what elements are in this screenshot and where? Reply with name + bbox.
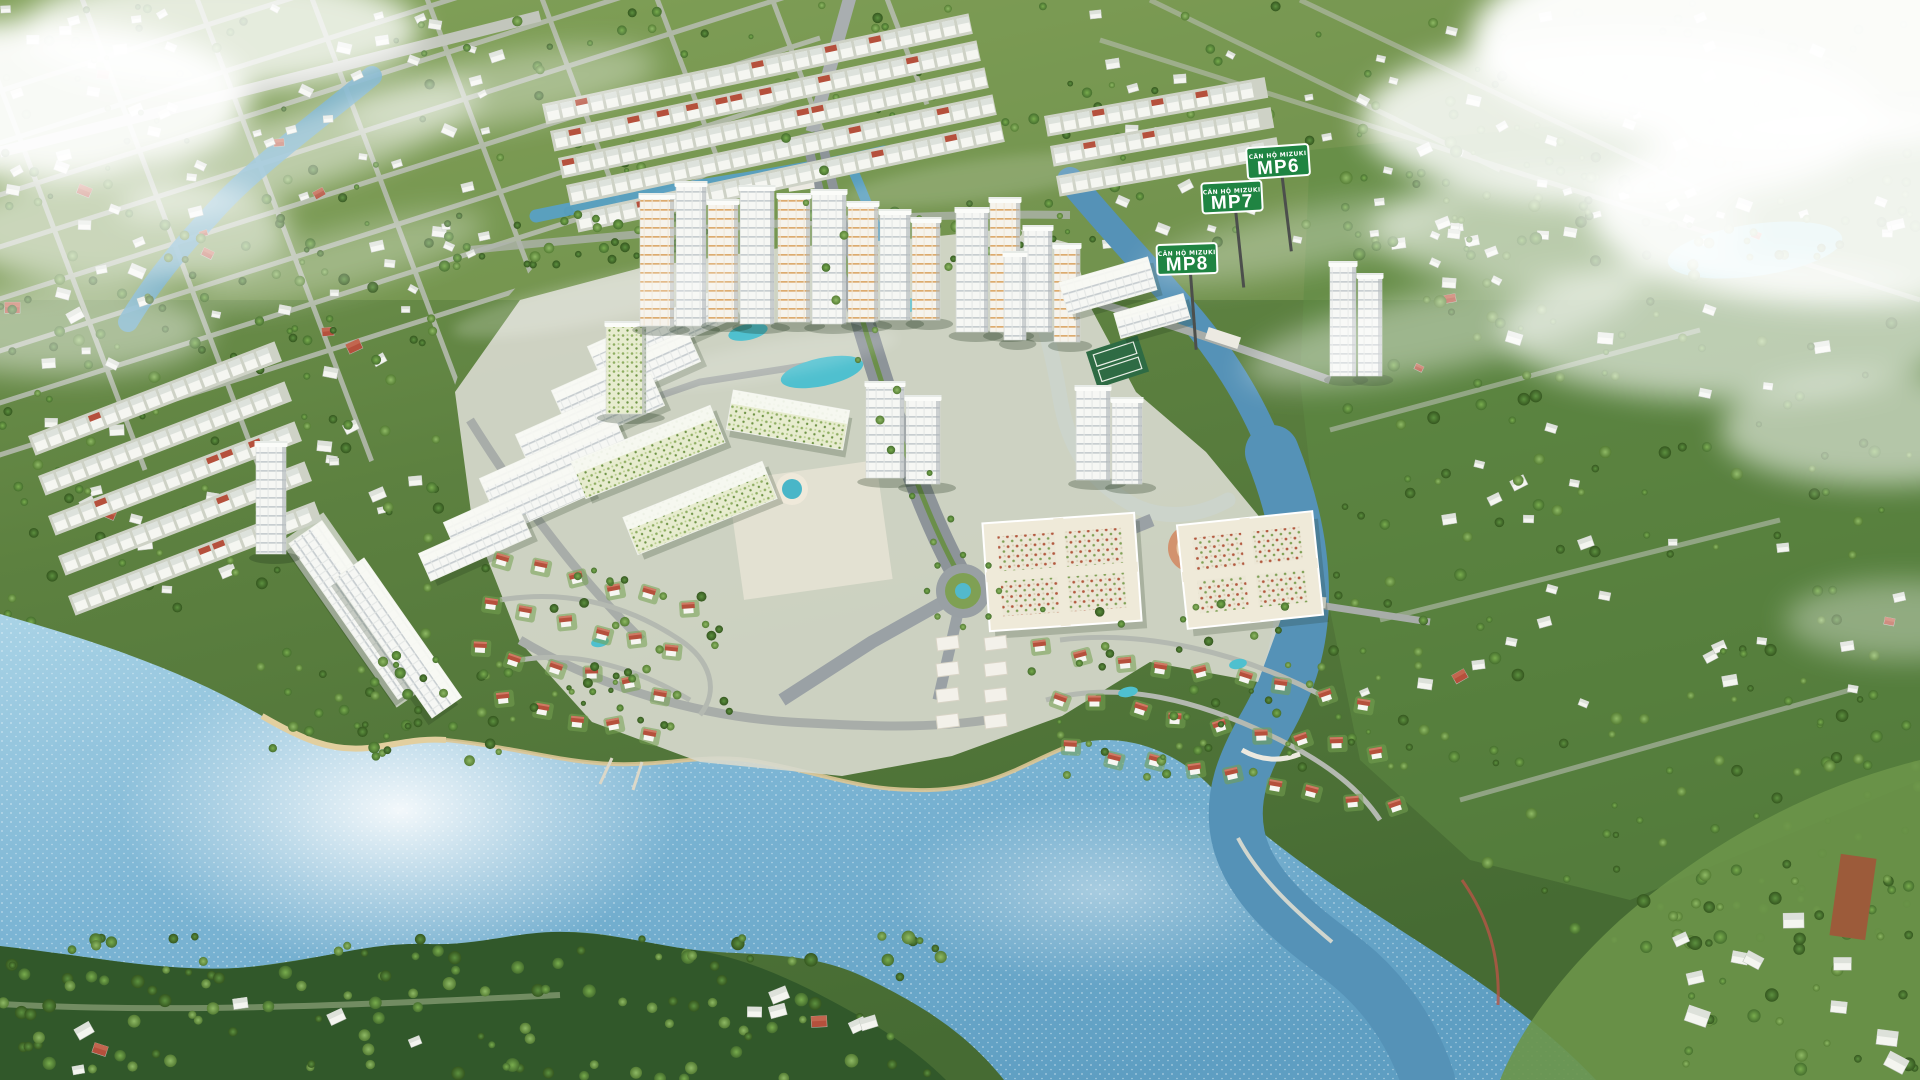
tree [419,674,427,682]
tree [64,493,74,503]
tree [201,979,210,988]
tree [226,557,234,565]
tree [680,50,688,58]
tree [717,975,728,986]
tree [1699,869,1711,881]
tree [1534,454,1545,465]
tree [1853,753,1864,764]
tree [19,968,31,980]
house [317,440,332,452]
tree [1204,637,1213,646]
tree [408,989,418,999]
tree [367,282,378,293]
tree [1334,591,1342,599]
tree [1118,620,1125,627]
tree [612,622,620,630]
tree [1449,751,1460,762]
house [401,306,410,312]
tree [1563,875,1571,883]
tree [638,935,645,942]
tree [20,498,28,506]
tree [1814,910,1824,920]
tree [479,669,489,679]
tree [1719,978,1726,985]
villa [567,713,589,732]
tree [1065,229,1070,234]
tree [334,947,343,956]
tree [1082,88,1092,98]
tree [1427,411,1440,424]
tree [809,997,822,1010]
tree [960,624,966,630]
tree [496,154,504,162]
tree [1515,757,1525,767]
tree [552,260,560,268]
tree [1454,569,1467,582]
tree [788,957,797,966]
tree [590,1060,599,1069]
tree [1098,663,1106,671]
tree [1658,838,1667,847]
tree [282,648,292,658]
tree [1640,941,1652,953]
tree [432,945,443,956]
house [1830,1000,1847,1013]
tree [799,1016,807,1024]
villa [661,642,683,661]
tree [86,971,98,983]
tree [581,701,586,706]
tree [934,562,940,568]
tree [354,184,359,189]
tree [1385,576,1396,587]
tree [1351,599,1360,608]
tree [524,261,531,268]
tree [114,1050,125,1061]
tree [1162,769,1171,778]
tree [13,482,23,492]
tree [1412,180,1420,188]
tree [1473,379,1482,388]
tree [1250,632,1258,640]
tree [1287,750,1293,756]
tree [930,539,937,546]
tree [1204,744,1212,752]
tree [552,691,558,697]
tree [1794,1063,1807,1076]
pavilion [984,713,1007,729]
tree [1795,1049,1808,1062]
tree [511,961,524,974]
sign-label: MP8 [1166,253,1209,275]
tree [1067,81,1073,87]
tree [1608,731,1615,738]
villa [1150,660,1172,680]
house [329,458,339,465]
tree [413,1002,423,1012]
tree [1388,763,1394,769]
tree [630,1067,642,1079]
tree [503,1063,511,1071]
tree [47,570,58,581]
tree [544,243,555,254]
tree [1903,881,1914,892]
tree [1642,489,1648,495]
tree [1613,866,1620,873]
villa [1366,744,1389,764]
tree [1089,236,1096,243]
tree [1522,371,1531,380]
tree [1578,488,1585,495]
tree [448,722,458,732]
tree [1169,711,1178,720]
tree [423,583,432,592]
tree [1530,390,1543,403]
tree [1396,419,1406,429]
sign-label: MP7 [1210,191,1254,214]
tree [1569,923,1580,934]
tree [343,942,351,950]
pavilion [936,687,959,703]
tree [510,716,516,722]
tree [720,697,729,706]
tree [315,1015,322,1022]
tree [1101,748,1109,756]
tree [583,678,593,688]
tree [947,516,954,523]
tree [496,661,503,668]
house [1668,539,1677,546]
tree [1086,741,1092,747]
tree [463,44,471,52]
tree [1357,512,1365,520]
tree [1904,931,1913,940]
tree [1854,1055,1862,1063]
villa [481,595,503,615]
tree [33,1032,45,1044]
tree [427,314,435,322]
house [1776,543,1789,553]
tree [1533,499,1545,511]
tree [1714,930,1728,944]
tree [152,1050,161,1059]
tree [1476,399,1487,410]
tree [871,24,880,33]
tree [301,414,307,420]
tree [281,106,286,111]
tree [1476,623,1484,631]
tree [1057,213,1063,219]
tree [587,40,593,46]
tree [710,961,720,971]
tree [804,953,818,967]
pavilion [984,635,1007,651]
tree [384,746,392,754]
tree [1414,662,1422,670]
tree [1183,713,1190,720]
tree [633,253,639,259]
tree [496,749,502,755]
tree [291,325,298,332]
tree [932,945,940,953]
tree [1400,762,1408,770]
tree [923,1069,931,1077]
tree [303,335,313,345]
tree [1794,933,1806,945]
tree [1189,685,1199,695]
tree [1106,649,1115,658]
tree [1659,446,1671,458]
tree [164,1055,177,1068]
tree [591,568,597,574]
scene-svg: CĂN HỘ MIZUKI MP8 CĂN HỘ MIZUKI MP7 CĂN … [0,0,1920,1080]
tree [1822,488,1830,496]
tree [1688,992,1695,999]
tree [1702,442,1712,452]
tree [1342,503,1349,510]
tree [256,577,268,589]
tree [628,8,637,17]
tree [1493,760,1500,767]
tree [803,200,809,206]
tree [1678,443,1687,452]
tree [652,7,662,17]
tree [1375,675,1381,681]
tree [24,1042,34,1052]
villa [1185,760,1207,780]
tree [1486,616,1492,622]
tree [1428,18,1438,28]
tree [1747,1009,1760,1022]
tree [148,371,160,383]
tree [1836,709,1849,722]
tree [1406,171,1413,178]
tree [1509,417,1517,425]
tree [426,482,437,493]
tree [902,931,916,945]
tree [512,16,522,26]
tree [1265,696,1273,704]
tree [412,952,420,960]
tree [599,243,609,253]
tree [927,470,933,476]
tree [960,552,966,558]
tree [1366,729,1371,734]
tree [1848,551,1857,560]
tree [569,689,575,695]
tree [1682,1060,1689,1067]
tree [697,592,707,602]
house [1417,678,1433,690]
villa [626,630,648,649]
tree [1592,465,1600,473]
house [428,19,442,30]
tree [279,966,292,979]
tree [29,528,39,538]
tree [1687,692,1695,700]
house [72,1065,85,1075]
tree [303,373,310,380]
tree [781,133,791,143]
tree [371,691,380,700]
tree [1360,648,1367,655]
tree [1740,650,1748,658]
tree [232,569,240,577]
tree [34,390,41,397]
tree [1589,546,1600,557]
tree [1714,755,1725,766]
tree [1857,696,1864,703]
house [1105,58,1120,70]
tree [344,991,353,1000]
tree [1040,607,1046,613]
tree [543,1067,554,1078]
tree [1772,793,1783,804]
aerial-masterplan-render: CĂN HỘ MIZUKI MP8 CĂN HỘ MIZUKI MP7 CĂN … [0,0,1920,1080]
tree [550,604,559,613]
tree [1791,877,1799,885]
tree [256,662,265,671]
tree [1039,3,1047,11]
tree [1364,70,1372,78]
tree [1731,468,1743,480]
tree [688,1000,699,1011]
tree [395,667,406,678]
tree [288,722,298,732]
tree [1636,817,1643,824]
tree [383,502,394,513]
tree [1044,199,1053,208]
tree [822,263,831,272]
tree [405,723,412,730]
tree [162,966,170,974]
tree [1774,532,1782,540]
tree [362,721,369,728]
tree [1405,488,1416,499]
tree [410,336,418,344]
tree [1285,741,1290,746]
tree [274,567,281,574]
tree [199,957,208,966]
tree [618,998,627,1007]
villa [679,600,700,618]
tree [660,721,668,729]
pavilion [936,635,959,651]
tree [1710,824,1719,833]
tree [1193,604,1200,611]
tree [341,443,352,454]
tree [156,549,163,556]
tree [1348,739,1355,746]
tree [1731,696,1737,702]
tree [665,1019,674,1028]
tree [845,1054,859,1068]
tree [593,223,602,232]
tree [1705,939,1713,947]
tree [1667,550,1674,557]
tree [362,1043,374,1055]
tree [730,1046,742,1058]
tree [357,727,367,737]
tree [1440,732,1449,741]
tree [1887,886,1896,895]
tree [423,533,433,543]
tree [1109,82,1115,88]
tree [9,962,16,969]
tree [1824,760,1836,772]
tree [655,953,662,960]
villa [1252,727,1273,745]
tree [159,994,172,1007]
tree [485,739,496,750]
tree [935,951,947,963]
tree [876,416,885,425]
tree [451,1067,465,1080]
tree [613,219,623,229]
villa [493,689,515,708]
tree [673,691,682,700]
tree [655,645,663,653]
tree [1414,647,1423,656]
tree [590,662,599,671]
tree [1495,518,1505,528]
tree [335,693,344,702]
tree [1176,743,1183,750]
tree [1380,519,1391,530]
tree [1298,762,1307,771]
tree [1753,813,1760,820]
tree [1318,663,1326,671]
tree [881,23,888,30]
tree [1599,446,1611,458]
tree [1010,123,1019,132]
tree [419,339,426,346]
villa [1061,738,1082,756]
tree [329,415,338,424]
tree [357,666,365,674]
tree [414,706,422,714]
tree [453,254,462,263]
tree [433,503,444,514]
tree [368,742,380,754]
tree [1101,642,1110,651]
tree [3,407,12,416]
tree [1556,545,1565,554]
villa [1327,735,1348,753]
tree [574,572,582,580]
tree [1639,714,1649,724]
tree [708,998,717,1007]
tree [726,708,733,715]
tree [314,708,323,717]
tree [451,966,460,975]
tree [448,951,461,964]
tree [1876,932,1884,940]
tree [1513,475,1524,486]
house [408,476,422,487]
pavilion [936,661,959,677]
tree [1823,1040,1830,1047]
tree [1340,171,1353,184]
tree [621,576,629,584]
tree [530,251,541,262]
tree [1512,669,1525,682]
tree [613,673,620,680]
tree [1731,865,1742,876]
tree [432,656,439,663]
tree [1404,475,1411,482]
tree [392,651,401,660]
